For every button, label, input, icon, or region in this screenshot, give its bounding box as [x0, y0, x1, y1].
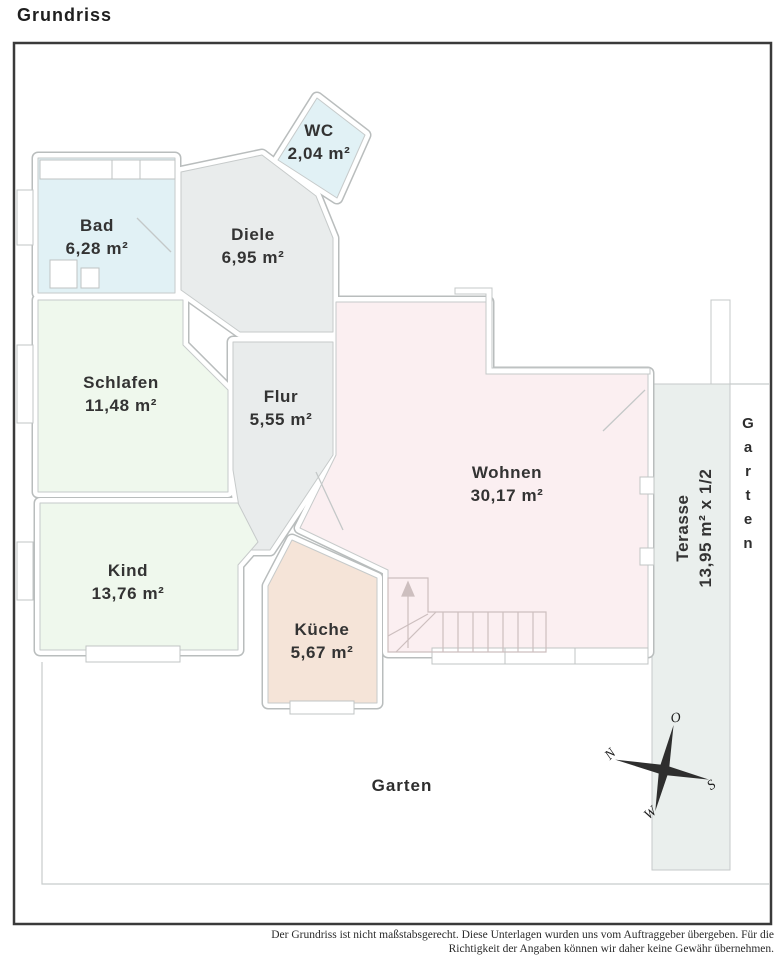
wall-post-terrace-2: [640, 548, 654, 565]
room-terasse: [652, 384, 730, 870]
disclaimer-line-2: Richtigkeit der Angaben können wir daher…: [214, 942, 774, 956]
wall-post-terrace-1: [640, 477, 654, 494]
room-area: 6,95 m²: [222, 246, 285, 269]
room-name: Bad: [66, 214, 129, 237]
room-label-terasse: Terasse 13,95 m² x 1/2: [671, 469, 717, 588]
room-area: 30,17 m²: [471, 484, 544, 507]
disclaimer-line-1: Der Grundriss ist nicht maßstabsgerecht.…: [214, 928, 774, 942]
room-name: Flur: [250, 385, 313, 408]
room-name: Küche: [291, 618, 354, 641]
room-area: 2,04 m²: [288, 142, 351, 165]
room-label-diele: Diele 6,95 m²: [222, 223, 285, 269]
window-wohnen-bottom: [432, 648, 648, 664]
room-name: Terasse: [671, 469, 694, 588]
room-area: 13,76 m²: [92, 582, 165, 605]
room-label-kind: Kind 13,76 m²: [92, 559, 165, 605]
window-kueche-bottom: [290, 701, 354, 714]
window-kind-left: [17, 542, 33, 600]
room-area: 13,95 m² x 1/2: [694, 469, 717, 588]
room-area: 6,28 m²: [66, 237, 129, 260]
room-name: WC: [288, 119, 351, 142]
terrace-pillar: [711, 300, 730, 384]
garten-side-label: Garten: [740, 415, 757, 559]
room-name: Schlafen: [83, 371, 159, 394]
window-kind-bottom: [86, 646, 180, 662]
bath-counter: [40, 160, 175, 179]
floorplan-page: Grundriss Bad 6,28 m² WC 2,04 m² Diele 6…: [0, 0, 784, 960]
window-bad-left: [17, 190, 33, 245]
room-name: Diele: [222, 223, 285, 246]
toilet-icon: [50, 260, 77, 288]
floorplan-drawing: [0, 0, 784, 960]
room-area: 5,67 m²: [291, 641, 354, 664]
disclaimer: Der Grundriss ist nicht maßstabsgerecht.…: [214, 928, 774, 956]
room-name: Wohnen: [471, 461, 544, 484]
window-schlafen-left: [17, 345, 33, 423]
page-title: Grundriss: [17, 5, 112, 26]
room-name: Kind: [92, 559, 165, 582]
room-label-bad: Bad 6,28 m²: [66, 214, 129, 260]
room-area: 11,48 m²: [83, 394, 159, 417]
garten-bottom-label: Garten: [372, 776, 433, 796]
room-label-schlafen: Schlafen 11,48 m²: [83, 371, 159, 417]
room-label-wohnen: Wohnen 30,17 m²: [471, 461, 544, 507]
room-label-kueche: Küche 5,67 m²: [291, 618, 354, 664]
room-label-flur: Flur 5,55 m²: [250, 385, 313, 431]
sink-icon: [81, 268, 99, 288]
room-area: 5,55 m²: [250, 408, 313, 431]
room-label-wc: WC 2,04 m²: [288, 119, 351, 165]
